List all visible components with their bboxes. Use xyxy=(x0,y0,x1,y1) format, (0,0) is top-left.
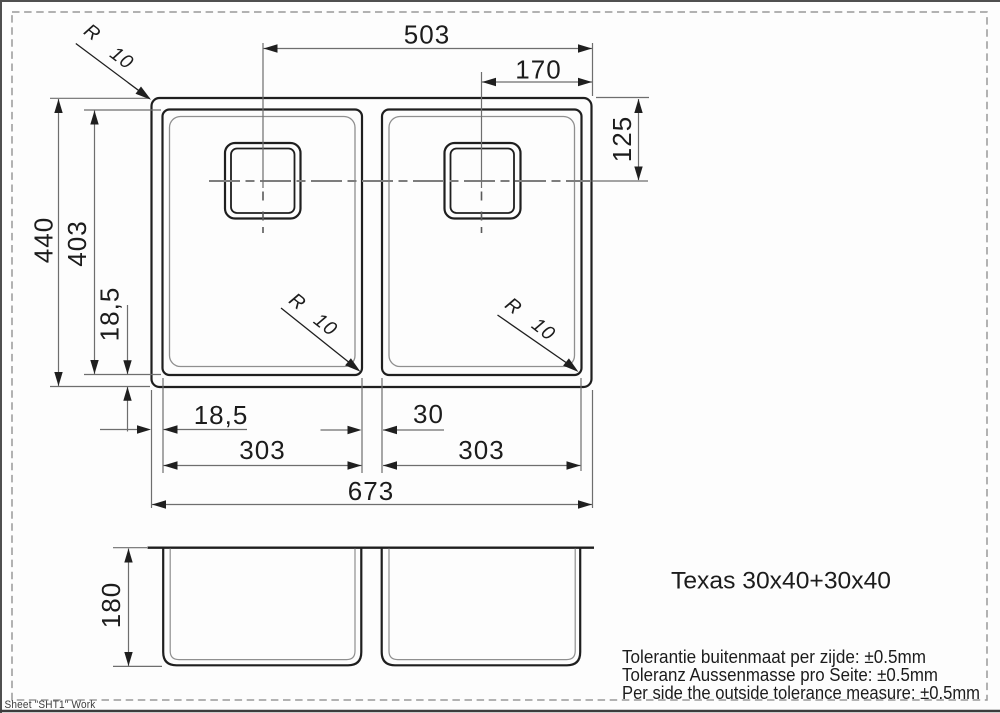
svg-text:303: 303 xyxy=(239,435,285,465)
svg-text:170: 170 xyxy=(515,55,561,85)
svg-text:403: 403 xyxy=(62,220,92,266)
svg-text:Tolerantie buitenmaat per zijd: Tolerantie buitenmaat per zijde: ±0.5mm xyxy=(622,647,926,667)
svg-text:18,5: 18,5 xyxy=(194,400,249,430)
svg-text:673: 673 xyxy=(348,476,394,506)
svg-text:Sheet "SHT1" Work: Sheet "SHT1" Work xyxy=(5,699,96,711)
svg-text:30: 30 xyxy=(413,399,444,429)
svg-text:503: 503 xyxy=(404,20,450,50)
svg-text:Per side the outside tolerance: Per side the outside tolerance measure: … xyxy=(622,683,980,703)
svg-text:440: 440 xyxy=(29,217,59,263)
svg-text:18,5: 18,5 xyxy=(95,287,125,342)
svg-text:Toleranz Aussenmasse pro Seite: Toleranz Aussenmasse pro Seite: ±0.5mm xyxy=(622,665,938,685)
svg-text:180: 180 xyxy=(96,582,126,628)
svg-text:125: 125 xyxy=(607,116,637,162)
svg-text:Texas 30x40+30x40: Texas 30x40+30x40 xyxy=(671,568,891,595)
svg-text:303: 303 xyxy=(458,435,504,465)
